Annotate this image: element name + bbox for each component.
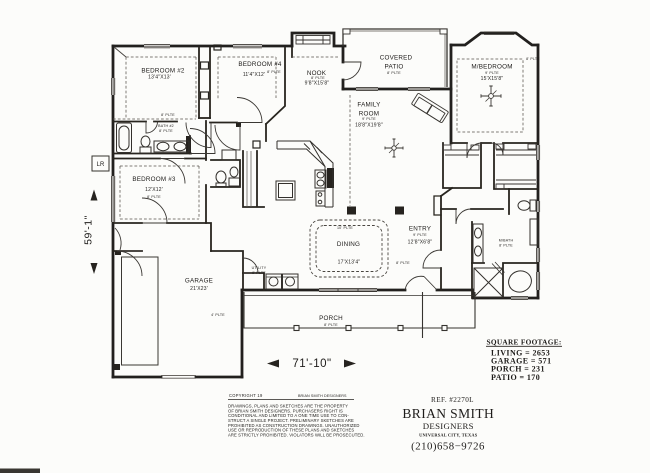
svg-text:SQUARE FOOTAGE:: SQUARE FOOTAGE: bbox=[487, 338, 562, 347]
svg-text:BEDROOM #4: BEDROOM #4 bbox=[238, 61, 282, 68]
svg-text:71'-10": 71'-10" bbox=[292, 358, 331, 370]
svg-text:9'8"X15'8": 9'8"X15'8" bbox=[305, 81, 330, 87]
svg-text:PATIO: PATIO bbox=[385, 64, 404, 71]
svg-text:FAMILY: FAMILY bbox=[357, 102, 381, 109]
svg-text:8' PLTE: 8' PLTE bbox=[526, 57, 540, 61]
svg-text:4' PLTE: 4' PLTE bbox=[211, 313, 225, 317]
svg-text:M/BATH: M/BATH bbox=[499, 239, 514, 243]
svg-text:10' PLTE: 10' PLTE bbox=[337, 226, 353, 230]
svg-text:8' PLTE: 8' PLTE bbox=[267, 70, 281, 74]
svg-text:ENTRY: ENTRY bbox=[409, 226, 432, 233]
svg-text:12'X12': 12'X12' bbox=[145, 187, 163, 193]
svg-text:(210)658−9726: (210)658−9726 bbox=[411, 441, 485, 453]
svg-text:PORCH: PORCH bbox=[319, 315, 343, 322]
svg-text:BRIAN SMITH: BRIAN SMITH bbox=[402, 406, 494, 421]
svg-text:COVERED: COVERED bbox=[380, 55, 413, 62]
svg-text:BEDROOM #3: BEDROOM #3 bbox=[132, 176, 176, 183]
svg-text:8' PLTE: 8' PLTE bbox=[387, 71, 401, 75]
svg-text:59'-1": 59'-1" bbox=[83, 215, 95, 245]
svg-text:COPYRIGHT 19: COPYRIGHT 19 bbox=[229, 393, 263, 398]
svg-text:9' PLTE: 9' PLTE bbox=[362, 117, 376, 121]
svg-text:18'8"X19'8": 18'8"X19'8" bbox=[355, 123, 383, 129]
svg-text:8' PLTE: 8' PLTE bbox=[499, 244, 513, 248]
svg-text:UTILITY: UTILITY bbox=[252, 266, 267, 270]
svg-text:BATH #2: BATH #2 bbox=[158, 124, 174, 128]
svg-text:UNIVERSAL CITY, TEXAS: UNIVERSAL CITY, TEXAS bbox=[419, 432, 478, 437]
svg-text:REF. #2270L: REF. #2270L bbox=[431, 396, 474, 404]
svg-text:BRIAN SMITH DESIGNERS: BRIAN SMITH DESIGNERS bbox=[298, 394, 347, 398]
svg-text:17'X13'4": 17'X13'4" bbox=[338, 260, 361, 266]
svg-text:21'X23': 21'X23' bbox=[190, 286, 208, 292]
svg-text:9' PLTE: 9' PLTE bbox=[485, 71, 499, 75]
svg-text:GARAGE: GARAGE bbox=[185, 278, 213, 285]
svg-text:12'8"X6'8": 12'8"X6'8" bbox=[408, 240, 433, 246]
svg-text:8' PLTE: 8' PLTE bbox=[161, 113, 175, 117]
svg-text:8' PLTE: 8' PLTE bbox=[311, 76, 325, 80]
svg-text:BEDROOM #2: BEDROOM #2 bbox=[141, 68, 185, 75]
svg-text:8' PLTE: 8' PLTE bbox=[147, 195, 161, 199]
svg-text:ARE STRICTLY PROHIBITED. VIO: ARE STRICTLY PROHIBITED. VIOLATORS WILL … bbox=[228, 432, 365, 437]
svg-text:11'4"X12': 11'4"X12' bbox=[243, 72, 265, 78]
svg-text:8' PLTE: 8' PLTE bbox=[159, 129, 173, 133]
svg-text:M/BEDROOM: M/BEDROOM bbox=[471, 64, 512, 71]
svg-text:DINING: DINING bbox=[337, 241, 360, 248]
svg-text:8' PLTE: 8' PLTE bbox=[324, 323, 338, 327]
svg-text:13'4"X13': 13'4"X13' bbox=[148, 75, 171, 81]
svg-text:PATIO = 170: PATIO = 170 bbox=[491, 373, 540, 382]
svg-text:9' PLTE: 9' PLTE bbox=[413, 233, 427, 237]
svg-text:8' PLTE: 8' PLTE bbox=[396, 261, 410, 265]
svg-text:LR: LR bbox=[97, 162, 105, 168]
svg-text:8' PLTE: 8' PLTE bbox=[252, 271, 266, 275]
svg-text:DESIGNERS: DESIGNERS bbox=[423, 421, 474, 431]
svg-text:15'X15'8": 15'X15'8" bbox=[481, 76, 504, 82]
